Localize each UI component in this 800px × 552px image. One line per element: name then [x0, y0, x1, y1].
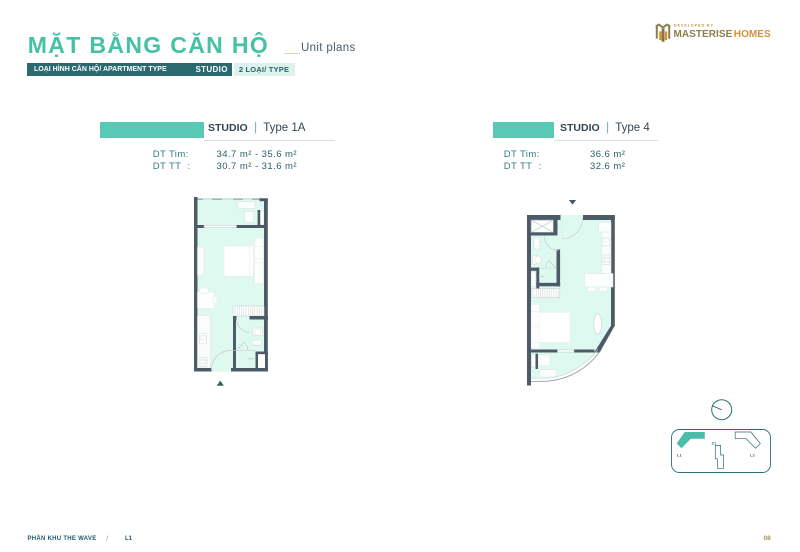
svg-text:L1: L1	[677, 452, 682, 457]
svg-text:L2: L2	[750, 452, 755, 457]
svg-text:Z1: Z1	[712, 440, 717, 445]
